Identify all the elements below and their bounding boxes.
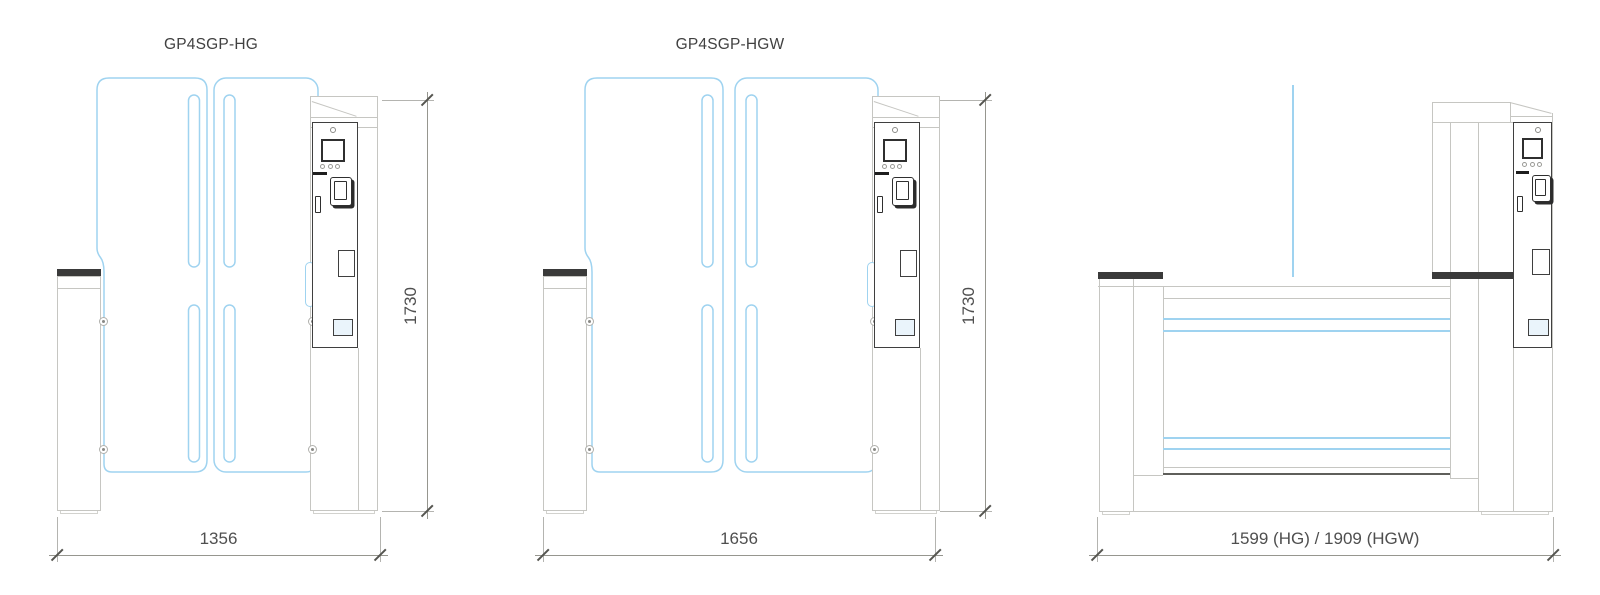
- hgw-height-label: 1730: [959, 266, 979, 346]
- hgw-height-dimension-line: [985, 92, 986, 519]
- hg-width-dimension-line: [49, 555, 388, 556]
- dimensions-layer: 1356 1730 1656 1730 1599 (HG) / 1909 (HG…: [0, 0, 1600, 595]
- hg-width-label: 1356: [57, 529, 380, 549]
- hg-height-label: 1730: [401, 266, 421, 346]
- front-width-label: 1599 (HG) / 1909 (HGW): [1097, 529, 1553, 549]
- hgw-width-label: 1656: [543, 529, 935, 549]
- gate-dimension-drawing-sheet: GP4SGP-HG GP4SGP-HGW: [0, 0, 1600, 595]
- hgw-width-dimension-line: [535, 555, 943, 556]
- hg-height-dimension-line: [427, 92, 428, 519]
- front-width-dimension-line: [1089, 555, 1561, 556]
